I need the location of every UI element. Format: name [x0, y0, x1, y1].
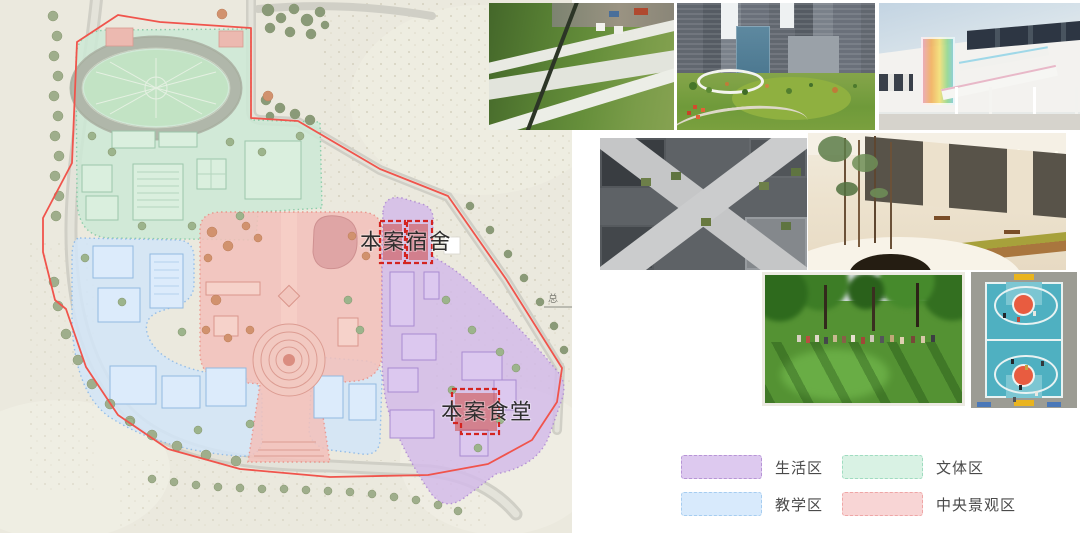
photo-school-building-rainbow-stair	[879, 3, 1080, 130]
photo-city-park-ring-walkway	[677, 3, 875, 130]
ring-walkway	[697, 69, 764, 94]
photo-basketball-court-aerial	[971, 272, 1077, 408]
players	[1003, 313, 1006, 318]
white-path	[489, 44, 674, 101]
glass-tower	[736, 26, 770, 76]
backboard	[1014, 274, 1034, 280]
legend-row: 教学区 中央景观区	[681, 492, 1016, 516]
dormitory-label: 本案宿舍	[360, 230, 452, 254]
plaza-ground	[879, 114, 1080, 131]
compass-mark: 总	[548, 292, 558, 305]
legend-label-teaching: 教学区	[775, 494, 842, 515]
skyline	[677, 3, 875, 75]
site-plan-map: 总 本案宿舍 本案食堂	[0, 0, 572, 533]
legend-swatch-central-landscape	[842, 492, 923, 516]
pavilions	[596, 23, 605, 31]
legend: 生活区 文体区 教学区 中央景观区	[681, 455, 1016, 529]
legend-swatch-living	[681, 455, 762, 479]
athletics-track	[71, 37, 241, 139]
photo-park-lawn-gathering	[762, 272, 965, 406]
planters	[641, 178, 651, 186]
park-trees	[689, 82, 697, 90]
legend-label-living: 生活区	[775, 457, 842, 478]
presentation-board: 总 本案宿舍 本案食堂	[0, 0, 1080, 533]
tree-canopy	[762, 272, 965, 334]
legend-label-culture-sports: 文体区	[936, 457, 984, 478]
playground	[693, 105, 697, 109]
legend-row: 生活区 文体区	[681, 455, 1016, 479]
photo-courtyard-paths-aerial	[600, 138, 807, 270]
photo-green-roof-landscape-aerial	[489, 3, 674, 130]
legend-swatch-culture-sports	[842, 455, 923, 479]
benches	[977, 402, 991, 407]
backboard	[1014, 400, 1034, 406]
legend-swatch-teaching	[681, 492, 762, 516]
tables	[1004, 230, 1020, 234]
tree-shadows	[765, 342, 962, 403]
canteen-label: 本案食堂	[441, 400, 533, 424]
photo-canteen-interior-trees	[808, 133, 1066, 270]
legend-label-central-landscape: 中央景观区	[936, 494, 1016, 515]
